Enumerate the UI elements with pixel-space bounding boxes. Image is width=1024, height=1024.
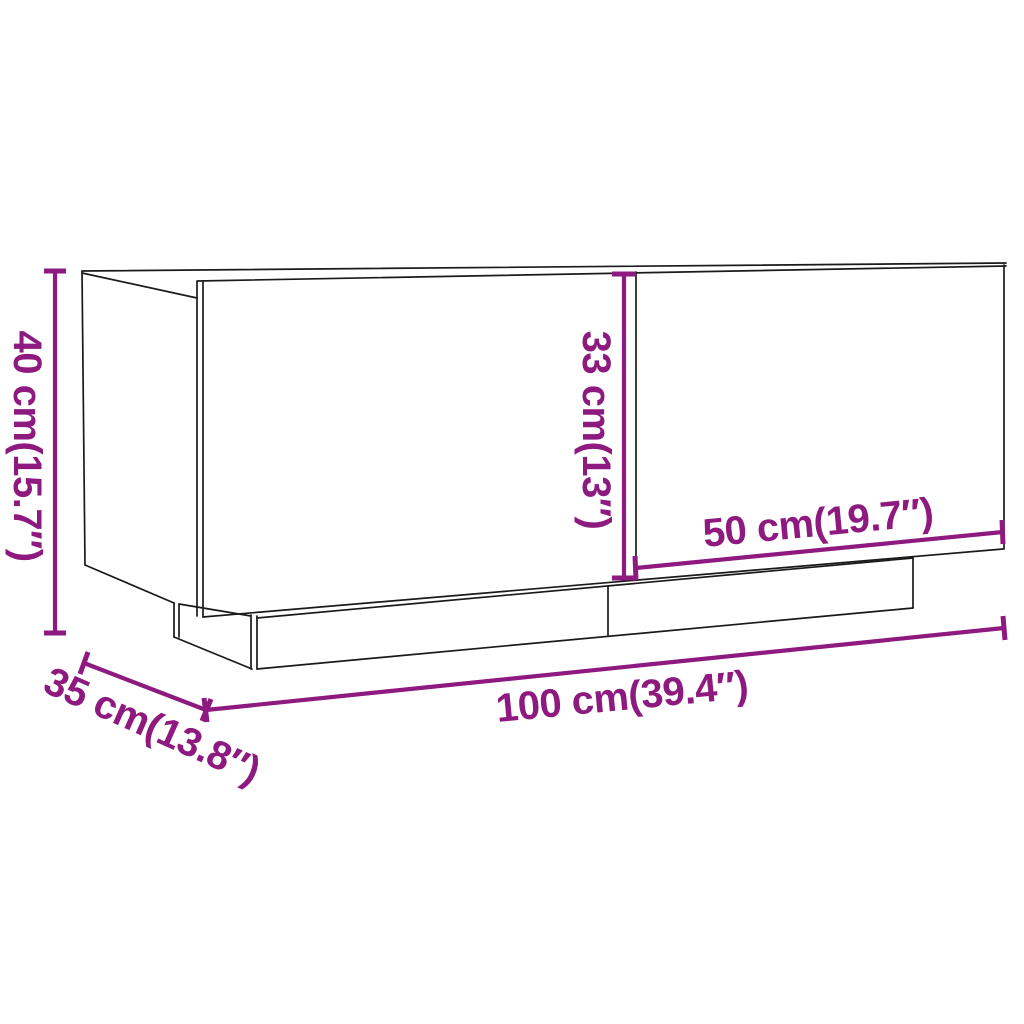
cabinet-top-back-edge <box>82 263 1006 271</box>
left-panel-top-edge <box>82 273 197 298</box>
door-width-dimension-label: 50 cm(19.7″) <box>701 490 935 556</box>
plinth-left-bottom-edge <box>174 637 252 669</box>
door-bottom-edge <box>203 549 1003 617</box>
width-dimension-label: 100 cm(39.4″) <box>494 663 750 731</box>
width-cap-right <box>1003 616 1005 640</box>
plinth-front-bottom-edge <box>257 608 913 669</box>
dimension-labels: 40 cm(15.7″) 33 cm(13″) 50 cm(19.7″) 100… <box>5 330 935 793</box>
inner-height-dimension-label: 33 cm(13″) <box>574 331 618 530</box>
tv-cabinet-diagram: 40 cm(15.7″) 33 cm(13″) 50 cm(19.7″) 100… <box>0 0 1024 1024</box>
left-panel-outer-edge <box>82 271 85 565</box>
cabinet-outline <box>82 263 1006 669</box>
height-dimension-label: 40 cm(15.7″) <box>5 330 49 561</box>
left-panel-bottom-edge <box>85 565 174 603</box>
door-width-cap-left <box>635 556 636 580</box>
plinth-left-top-edge <box>179 604 251 616</box>
plinth-front-top-edge <box>257 558 913 618</box>
door-width-cap-right <box>1002 520 1003 544</box>
dimension-diagram: 40 cm(15.7″) 33 cm(13″) 50 cm(19.7″) 100… <box>0 0 1024 1024</box>
depth-dimension-label: 35 cm(13.8″) <box>38 659 267 793</box>
